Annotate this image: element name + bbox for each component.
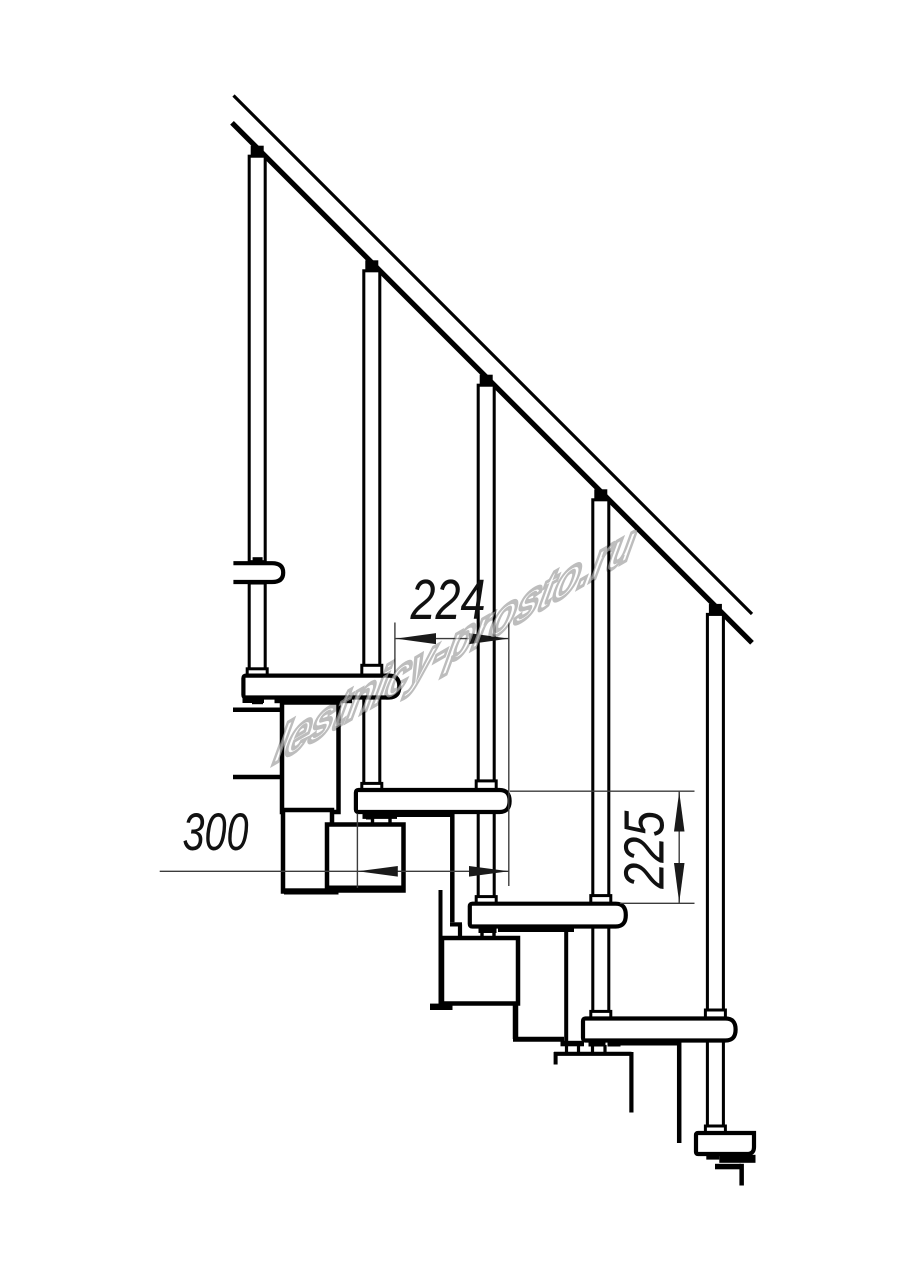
svg-text:300: 300 [183,803,249,862]
svg-text:225: 225 [613,811,677,890]
